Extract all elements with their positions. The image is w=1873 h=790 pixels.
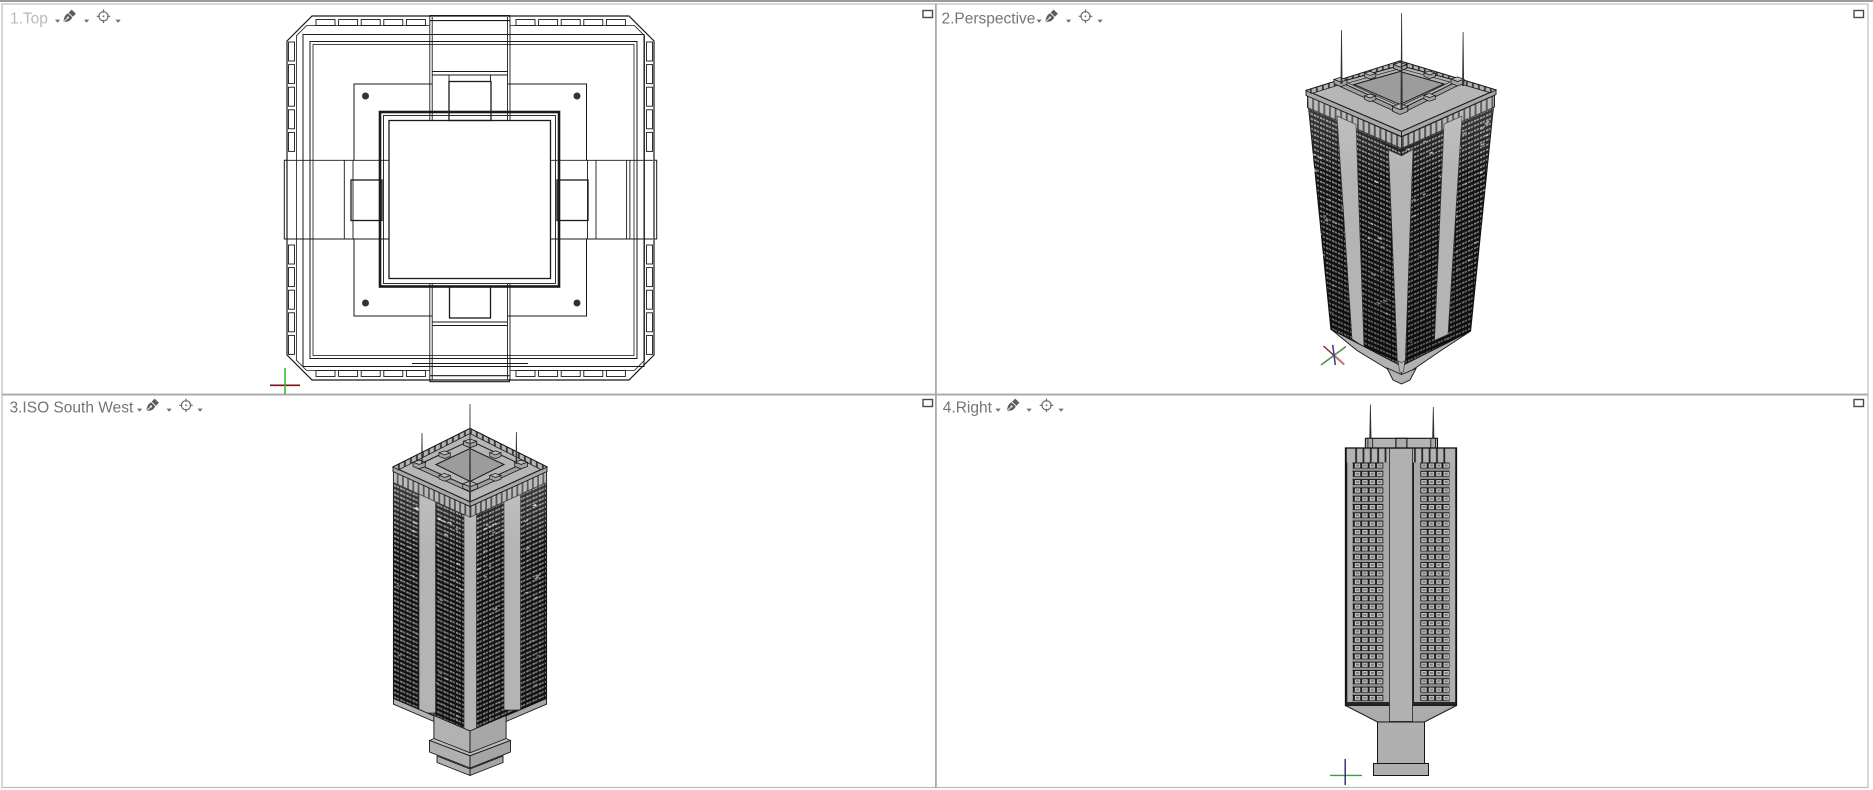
- svg-text:4.Right: 4.Right: [943, 400, 993, 417]
- svg-text:3.ISO South West: 3.ISO South West: [10, 400, 134, 417]
- svg-text:2.Perspective: 2.Perspective: [942, 11, 1036, 28]
- svg-text:1.Top: 1.Top: [10, 11, 48, 28]
